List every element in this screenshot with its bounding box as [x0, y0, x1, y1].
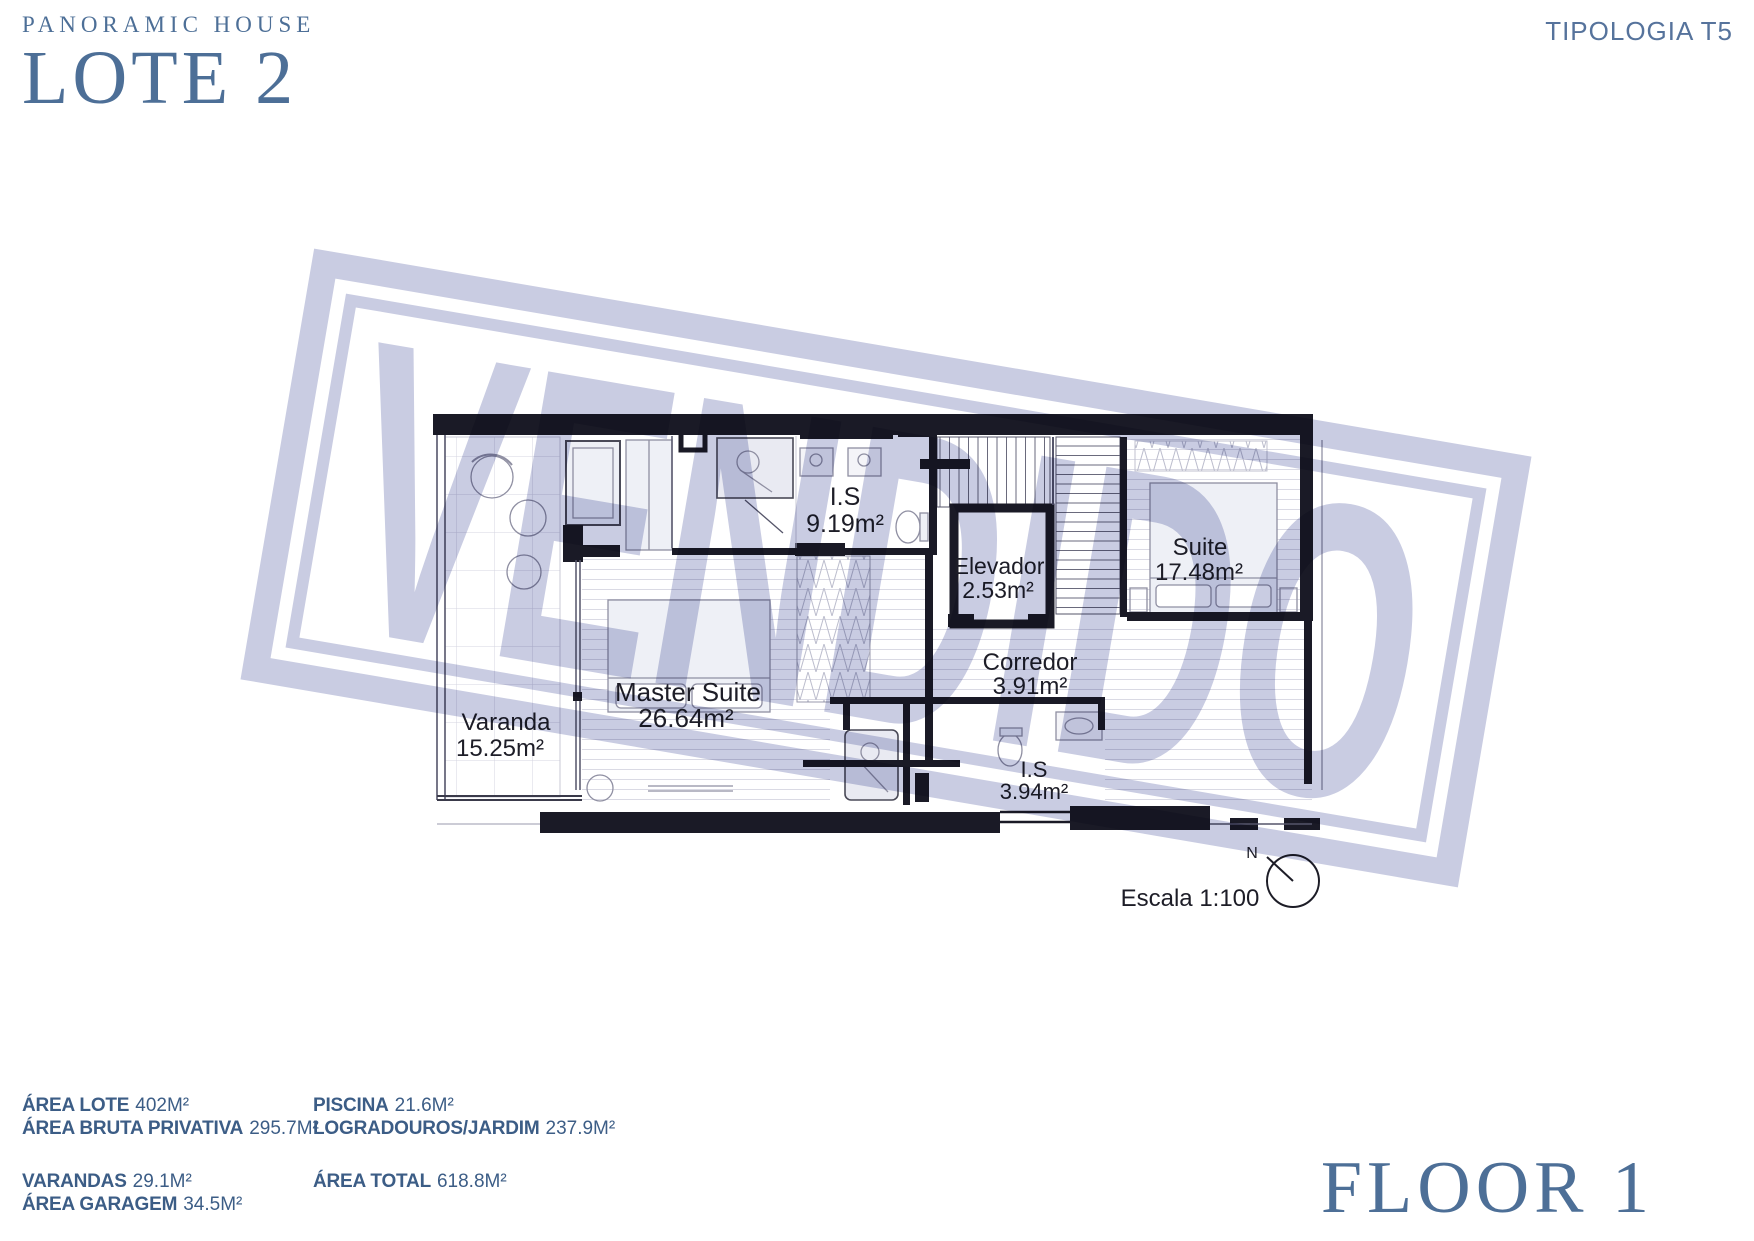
- room-label-corredor: Corredor: [983, 649, 1078, 676]
- floor-plan: I.S 9.19m² Elevador 2.53m² Suite 17.48m²…: [0, 0, 1754, 1241]
- areas-column-1: ÁREA LOTE402M² ÁREA BRUTA PRIVATIVA295.7…: [22, 1094, 319, 1216]
- room-area-suite: 17.48m²: [1155, 559, 1243, 586]
- sink: [848, 448, 881, 476]
- scale-label: Escala 1:100: [1121, 885, 1260, 912]
- room-label-suite: Suite: [1173, 534, 1228, 561]
- area-label: LOGRADOUROS/JARDIM: [313, 1118, 540, 1139]
- area-line: ÁREA BRUTA PRIVATIVA295.7M²: [22, 1117, 319, 1140]
- area-label: ÁREA BRUTA PRIVATIVA: [22, 1118, 243, 1139]
- area-label: VARANDAS: [22, 1171, 127, 1192]
- room-label-is1: I.S: [830, 483, 861, 511]
- room-area-corredor: 3.91m²: [993, 673, 1068, 700]
- room-area-varanda: 15.25m²: [456, 735, 544, 762]
- room-area-is1: 9.19m²: [806, 510, 884, 538]
- wardrobe: [566, 441, 620, 525]
- area-value: 29.1M²: [133, 1171, 192, 1192]
- areas-column-2: PISCINA21.6M² LOGRADOUROS/JARDIM237.9M² …: [313, 1094, 615, 1193]
- area-line: ÁREA TOTAL618.8M²: [313, 1170, 615, 1193]
- area-value: 618.8M²: [437, 1171, 507, 1192]
- area-value: 34.5M²: [183, 1194, 242, 1215]
- area-label: ÁREA LOTE: [22, 1095, 129, 1116]
- area-line: ÁREA GARAGEM34.5M²: [22, 1193, 319, 1216]
- sink: [800, 448, 833, 476]
- room-label-elevador: Elevador: [954, 553, 1045, 579]
- area-value: 21.6M²: [395, 1095, 454, 1116]
- north-compass-icon: [1267, 855, 1319, 907]
- area-line: LOGRADOUROS/JARDIM237.9M²: [313, 1117, 615, 1140]
- sink: [1056, 712, 1102, 740]
- shower: [717, 438, 793, 498]
- area-line: VARANDAS29.1M²: [22, 1170, 319, 1193]
- north-label: N: [1246, 845, 1258, 862]
- area-label: ÁREA GARAGEM: [22, 1194, 177, 1215]
- room-label-varanda: Varanda: [462, 709, 552, 736]
- area-line: PISCINA21.6M²: [313, 1094, 615, 1117]
- room-area-elevador: 2.53m²: [962, 577, 1034, 603]
- area-label: ÁREA TOTAL: [313, 1171, 431, 1192]
- floor-label: FLOOR 1: [1321, 1146, 1654, 1231]
- toilet: [998, 734, 1022, 766]
- area-label: PISCINA: [313, 1095, 389, 1116]
- room-area-is2: 3.94m²: [1000, 779, 1068, 804]
- scale-and-compass: Escala 1:100 N: [1121, 845, 1319, 912]
- room-area-master: 26.64m²: [638, 703, 734, 733]
- area-value: 237.9M²: [546, 1118, 616, 1139]
- area-value: 402M²: [135, 1095, 189, 1116]
- toilet: [896, 511, 920, 543]
- area-value: 295.7M²: [249, 1118, 319, 1139]
- area-line: ÁREA LOTE402M²: [22, 1094, 319, 1117]
